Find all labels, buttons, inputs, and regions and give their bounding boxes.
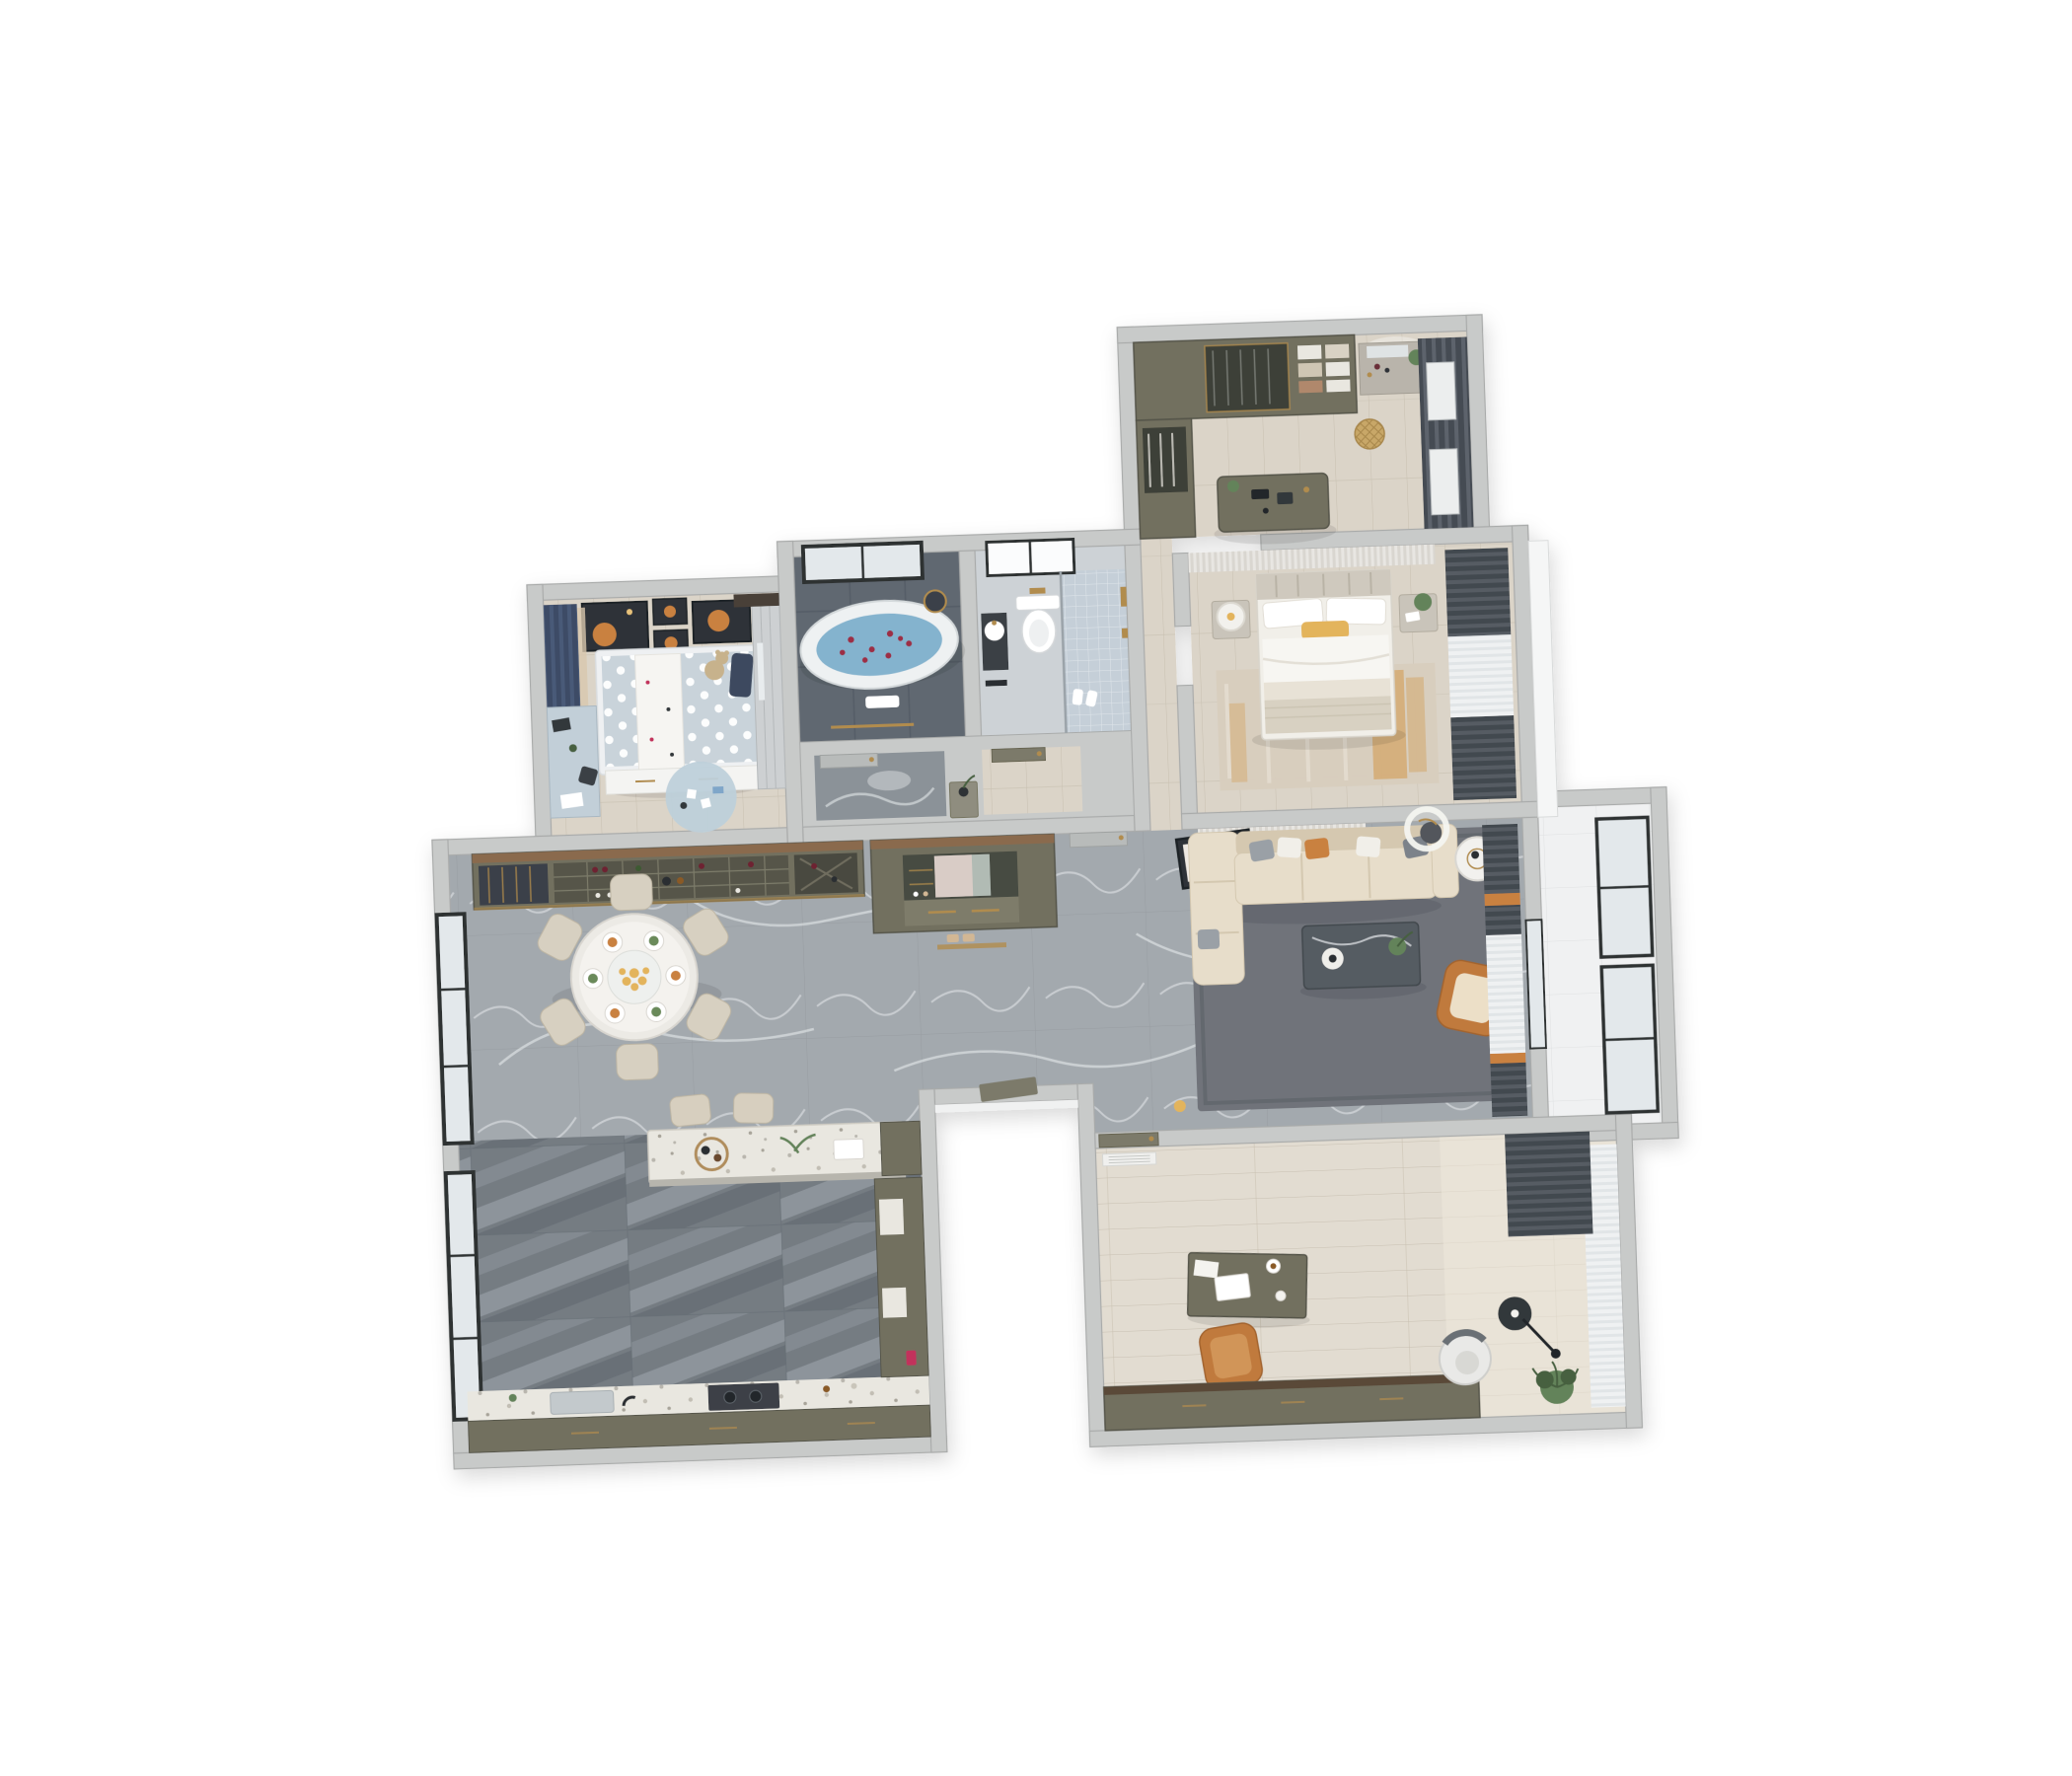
rattan-basket: [1355, 418, 1385, 449]
laptop: [1215, 1274, 1251, 1301]
shoe-drawers: [904, 897, 1019, 926]
slipper: [1072, 689, 1083, 705]
wall-bedroom-west-a: [1172, 553, 1191, 627]
high-shelf: [733, 593, 778, 608]
cooktop: [707, 1382, 779, 1410]
entry-cabinet: [870, 834, 1058, 944]
rain-shower-head: [924, 590, 946, 613]
toy-block: [687, 789, 697, 799]
door-leaf: [820, 754, 877, 769]
kitchen-window-wall: [446, 1172, 482, 1420]
shower-fixture: [1120, 587, 1127, 607]
bedroom-curtains: [1444, 548, 1517, 800]
interior-door: [1070, 832, 1127, 848]
pillow: [729, 653, 754, 698]
cutting-board: [834, 1139, 864, 1159]
kids-desk: [547, 705, 600, 818]
slipper: [947, 934, 959, 942]
slipper: [963, 933, 975, 941]
towel: [865, 696, 899, 708]
saucer: [1276, 1291, 1286, 1300]
chaise: [1188, 832, 1244, 986]
island-dresser: [1213, 473, 1337, 546]
dining-chair: [610, 874, 652, 911]
closet-window-blinds: [1418, 336, 1474, 529]
throw-pillow: [1304, 838, 1330, 860]
dining-window-wall: [437, 914, 473, 1144]
towel-rack: [986, 680, 1007, 687]
throw-pillow: [1277, 837, 1301, 858]
red-grinder: [906, 1351, 917, 1366]
gray-curtain: [1505, 1132, 1593, 1237]
double-bed: [1246, 569, 1406, 752]
mirror: [1367, 345, 1408, 358]
bar-stool: [669, 1093, 711, 1127]
throw-pillow: [1356, 836, 1381, 857]
island-end-cabinet: [880, 1121, 922, 1175]
writing-desk: [1187, 1253, 1310, 1329]
side-counter: [874, 1177, 928, 1377]
lounge-chair: [1439, 1332, 1492, 1385]
shower-fixture: [1122, 629, 1128, 638]
toy: [712, 786, 723, 793]
dining-chair: [616, 1043, 658, 1079]
coffee-table: [1298, 922, 1428, 1000]
flush-plate: [1029, 587, 1045, 594]
apartment-plan: [415, 309, 1689, 1469]
sink: [551, 1390, 615, 1414]
desk-chair: [1198, 1321, 1265, 1391]
wardrobe: [1134, 334, 1358, 420]
ceiling-vent: [1102, 1152, 1155, 1166]
nightstand-right: [1399, 593, 1438, 632]
bar-stool: [733, 1093, 774, 1124]
throw-pillow: [1198, 929, 1221, 950]
bed-runner: [635, 653, 685, 770]
console-table: [949, 776, 978, 818]
floorplan-stage: [0, 0, 2072, 1776]
throw-pillow: [1248, 839, 1275, 862]
island-counter: [647, 1122, 906, 1187]
room-living: [1164, 806, 1528, 1128]
papers: [1194, 1260, 1220, 1279]
balcony-glass-door: [1525, 920, 1546, 1048]
wardrobe-left-run: [1137, 418, 1196, 539]
nightstand-left: [1212, 600, 1250, 638]
bath-window: [803, 543, 923, 582]
pillow: [1326, 598, 1385, 625]
floorplan-render: [0, 0, 2072, 1776]
